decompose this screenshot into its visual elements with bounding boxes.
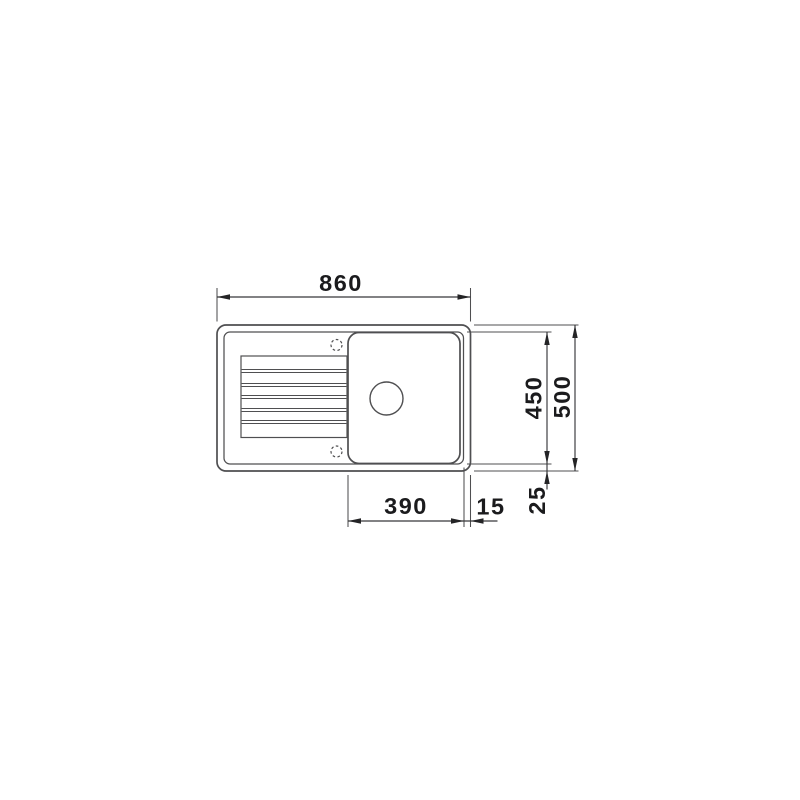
sink-technical-drawing: 860 450 500 390 15 25 [0,0,800,800]
drain-hole [370,382,403,415]
label-edge-gap: 15 [476,494,505,520]
tap-hole-bottom [331,446,342,457]
drainboard-grooves [242,370,347,424]
arrow-head [572,325,577,338]
arrow-head [544,451,549,464]
arrow-head [348,518,361,523]
arrow-head [217,294,230,299]
dimension-labels: 860 450 500 390 15 25 [319,270,575,520]
arrow-head [544,471,549,484]
sink-geometry [217,325,471,471]
arrow-head [458,294,471,299]
label-overall-width: 860 [319,270,363,296]
arrow-head [544,332,549,345]
label-bowl-width: 390 [384,493,428,519]
technical-drawing-page: 860 450 500 390 15 25 [0,0,800,800]
drainboard-panel [241,356,347,438]
arrow-head [572,458,577,471]
label-overall-height: 500 [549,375,575,419]
drainboard-outline [241,356,347,438]
arrow-head [451,518,464,523]
label-bowl-height: 450 [521,376,547,420]
label-rim-margin: 25 [524,485,550,514]
tap-hole-top [331,340,342,351]
main-bowl [348,333,460,464]
